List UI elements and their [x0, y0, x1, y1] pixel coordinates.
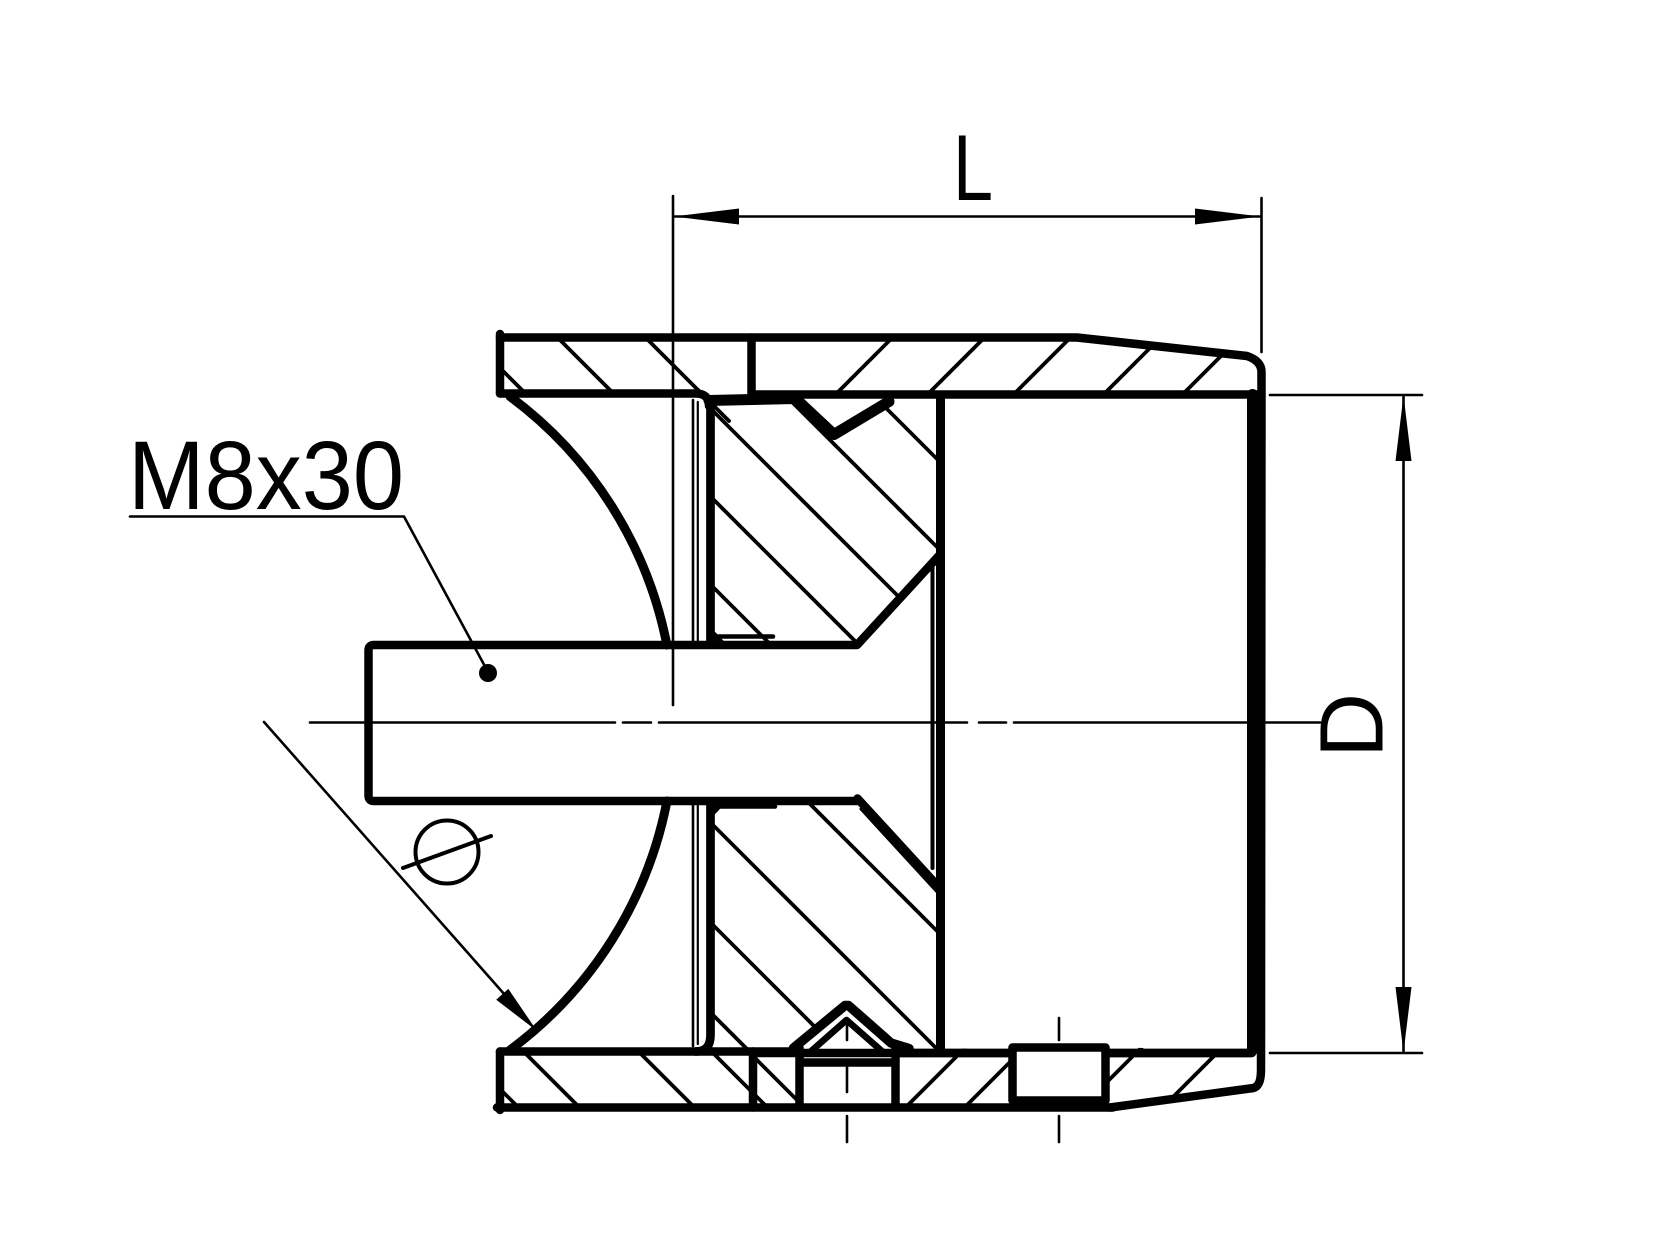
svg-text:D: D: [1303, 693, 1403, 758]
svg-text:M8x30: M8x30: [128, 421, 404, 530]
svg-text:L: L: [953, 115, 993, 220]
